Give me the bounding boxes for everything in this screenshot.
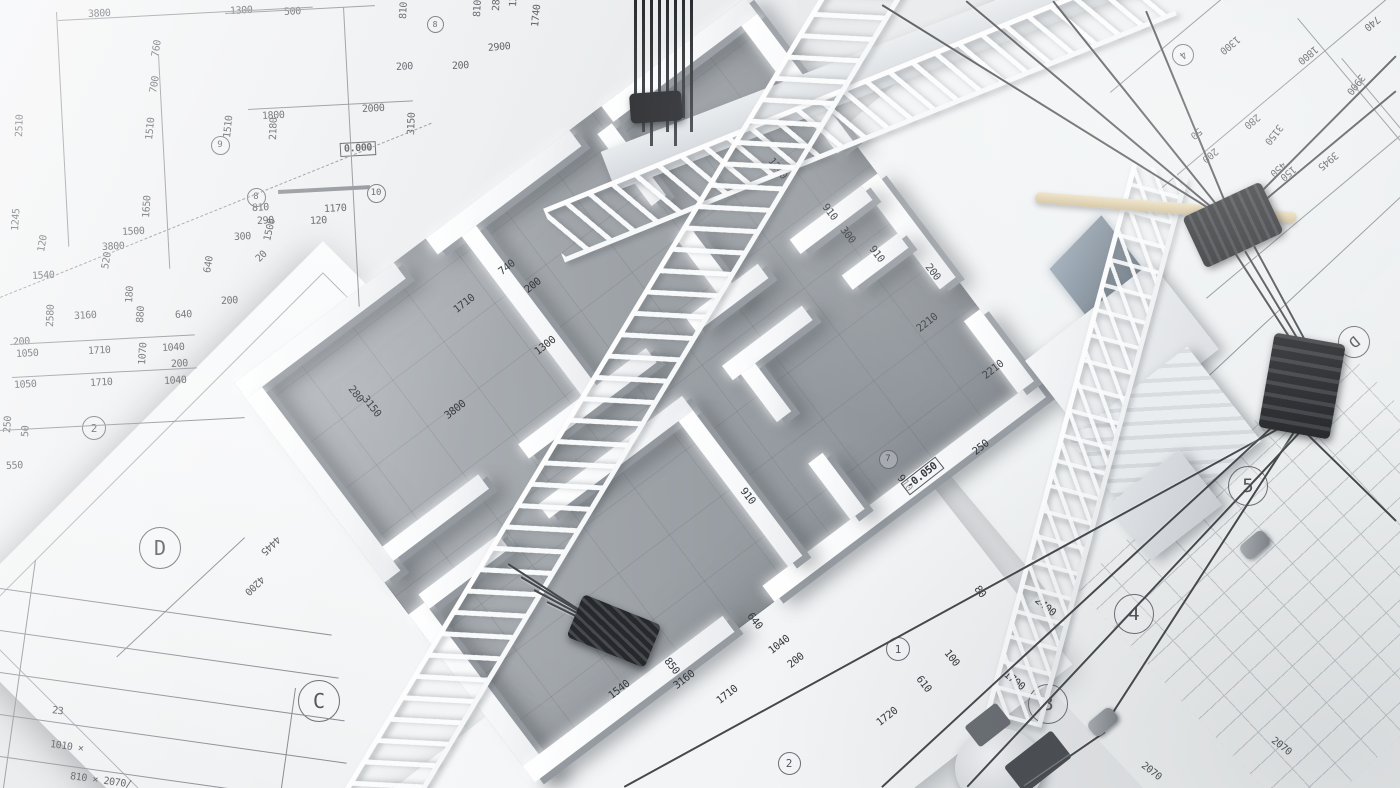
hoist-block xyxy=(629,90,683,124)
architectural-render: 3800130050081081028012017402900200200315… xyxy=(0,0,1400,788)
